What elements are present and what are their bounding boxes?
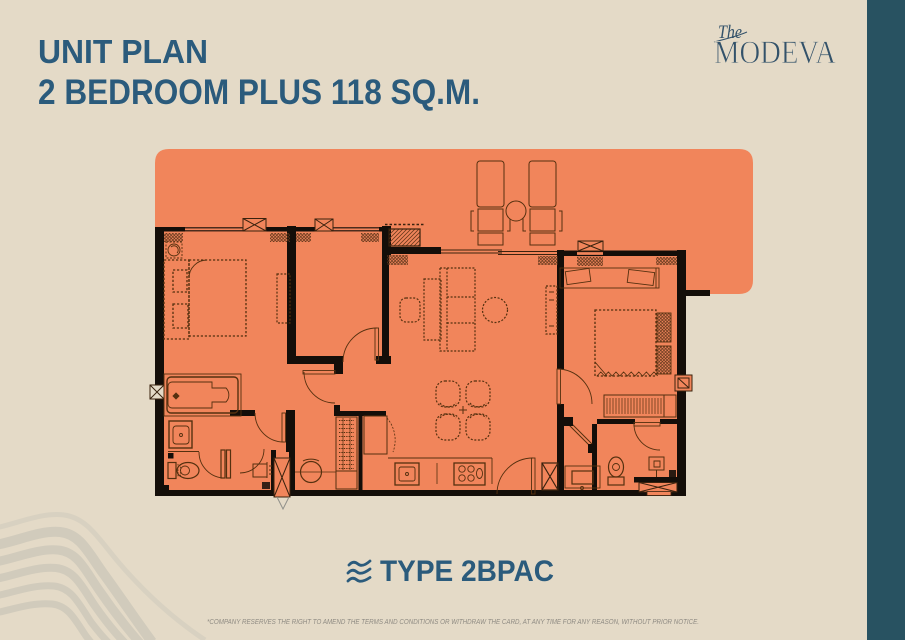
svg-text:TYPE 2BPAC: TYPE 2BPAC [380, 555, 554, 588]
svg-text:*COMPANY RESERVES THE RIGHT TO: *COMPANY RESERVES THE RIGHT TO AMEND THE… [207, 617, 699, 626]
svg-text:2 BEDROOM PLUS 118 SQ.M.: 2 BEDROOM PLUS 118 SQ.M. [38, 73, 480, 112]
svg-text:UNIT PLAN: UNIT PLAN [38, 33, 208, 70]
svg-text:MODEVA: MODEVA [714, 35, 836, 71]
